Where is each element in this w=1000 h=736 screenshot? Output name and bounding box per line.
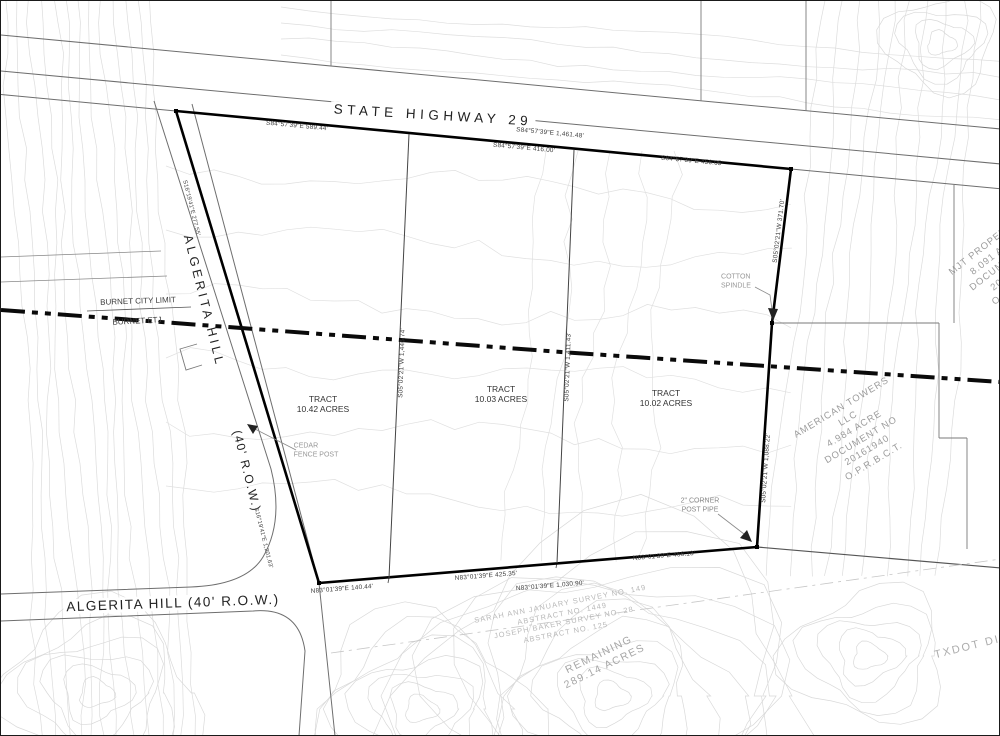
tract-3-label: TRACT 10.02 ACRES xyxy=(640,388,692,408)
tract-1-area: 10.42 ACRES xyxy=(297,404,349,414)
tract-3-title: TRACT xyxy=(640,388,692,398)
cedar-fence-post-line2: FENCE POST xyxy=(294,451,339,460)
cotton-spindle-note: COTTON SPINDLE xyxy=(721,274,751,291)
corner-post-pipe-note: 2" CORNER POST PIPE xyxy=(681,498,720,515)
corner-post-pipe-line1: 2" CORNER xyxy=(681,498,720,507)
cotton-spindle-line1: COTTON xyxy=(721,274,751,283)
tract-2-title: TRACT xyxy=(475,384,527,394)
cedar-fence-post-line1: CEDAR xyxy=(294,443,339,452)
tract-1-title: TRACT xyxy=(297,394,349,404)
tract-2-label: TRACT 10.03 ACRES xyxy=(475,384,527,404)
cotton-spindle-line2: SPINDLE xyxy=(721,282,751,291)
tract-3-area: 10.02 ACRES xyxy=(640,398,692,408)
plat-drawing: STATE HIGHWAY 29 ALGERITA HILL (40' R.O.… xyxy=(0,0,1000,736)
corner-post-pipe-line2: POST PIPE xyxy=(681,506,720,515)
tract-1-label: TRACT 10.42 ACRES xyxy=(297,394,349,414)
cedar-fence-post-note: CEDAR FENCE POST xyxy=(294,443,339,460)
tract-2-area: 10.03 ACRES xyxy=(475,394,527,404)
